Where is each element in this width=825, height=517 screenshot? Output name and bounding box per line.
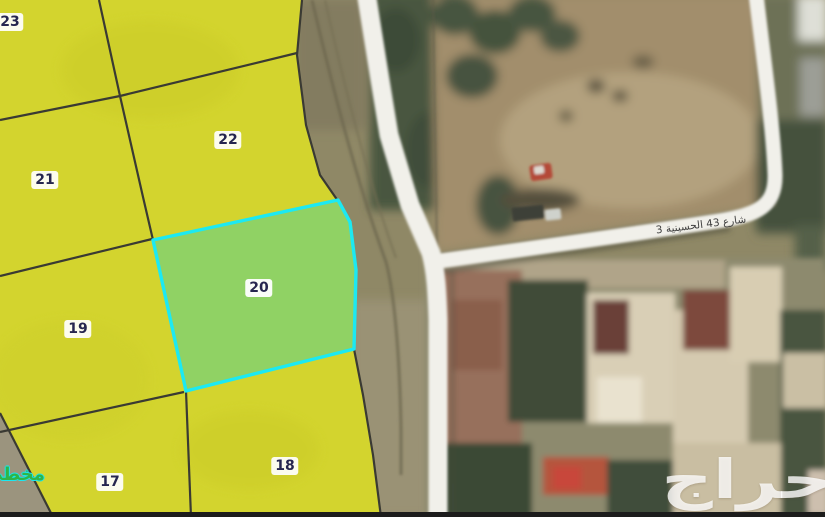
red-car-roof [533, 165, 544, 174]
parcel-label-21: 21 [31, 171, 58, 189]
map-screenshot: 23 21 22 20 19 17 18 مخطط شارع 43 الحسين… [0, 0, 825, 517]
bottom-black-bar [0, 512, 825, 517]
plan-name-label: مخطط [0, 464, 45, 485]
parcel-label-22: 22 [214, 131, 241, 149]
haraj-watermark: حراج [661, 448, 825, 511]
parcel-label-20-highlighted: 20 [245, 279, 272, 297]
white-car [545, 208, 562, 221]
map-canvas [0, 0, 825, 517]
parcel-label-18: 18 [271, 457, 298, 475]
parcel-label-17: 17 [96, 473, 123, 491]
parcel-label-19: 19 [64, 320, 91, 338]
parcel-label-23: 23 [0, 13, 24, 31]
